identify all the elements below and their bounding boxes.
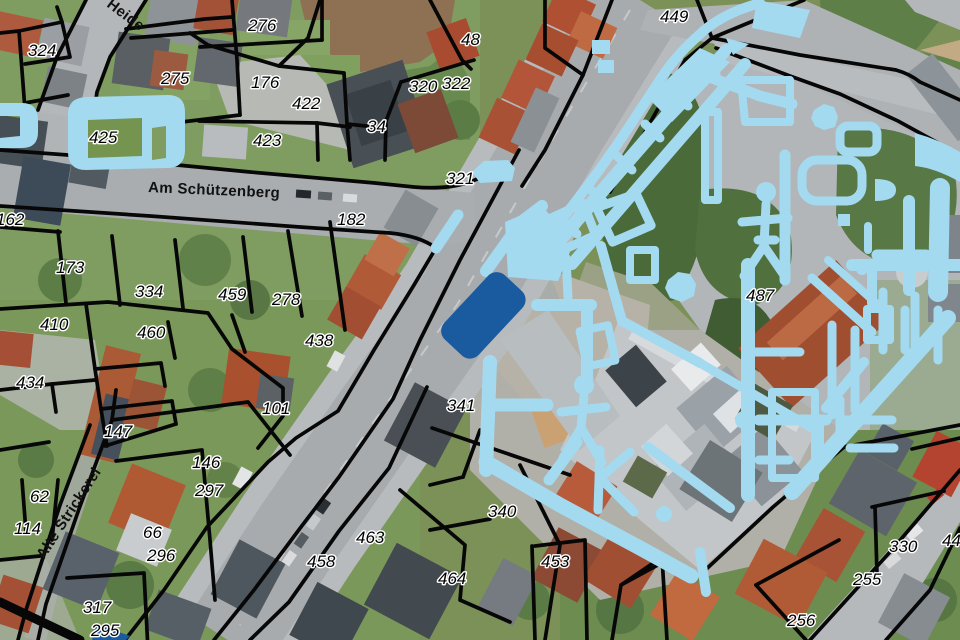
svg-text:487: 487 — [746, 286, 775, 305]
svg-text:453: 453 — [541, 552, 570, 571]
svg-text:256: 256 — [786, 611, 816, 630]
svg-text:410: 410 — [40, 315, 69, 334]
svg-text:255: 255 — [852, 570, 882, 589]
svg-text:101: 101 — [262, 399, 290, 418]
svg-text:34: 34 — [367, 117, 386, 136]
svg-text:341: 341 — [447, 396, 475, 415]
svg-text:176: 176 — [251, 73, 280, 92]
svg-text:182: 182 — [337, 210, 366, 229]
svg-text:147: 147 — [104, 422, 133, 441]
svg-text:458: 458 — [307, 552, 336, 571]
svg-text:449: 449 — [660, 7, 689, 26]
svg-text:438: 438 — [305, 331, 334, 350]
svg-text:330: 330 — [889, 537, 918, 556]
svg-text:434: 434 — [16, 373, 44, 392]
svg-text:162: 162 — [0, 210, 25, 229]
svg-text:425: 425 — [89, 128, 118, 147]
svg-text:173: 173 — [56, 258, 85, 277]
svg-text:459: 459 — [218, 285, 247, 304]
svg-text:334: 334 — [135, 282, 163, 301]
svg-text:44: 44 — [942, 531, 960, 550]
svg-text:295: 295 — [90, 621, 120, 640]
svg-text:114: 114 — [14, 519, 41, 538]
svg-text:317: 317 — [83, 598, 112, 617]
svg-text:463: 463 — [356, 528, 385, 547]
svg-text:296: 296 — [146, 546, 176, 565]
svg-text:321: 321 — [446, 169, 474, 188]
svg-text:320: 320 — [409, 77, 438, 96]
svg-text:146: 146 — [192, 453, 221, 472]
svg-text:66: 66 — [143, 523, 162, 542]
svg-text:422: 422 — [292, 94, 321, 113]
svg-text:322: 322 — [442, 74, 471, 93]
svg-text:297: 297 — [194, 481, 224, 500]
svg-text:460: 460 — [137, 323, 166, 342]
svg-text:276: 276 — [247, 16, 277, 35]
svg-text:340: 340 — [488, 502, 517, 521]
svg-text:423: 423 — [253, 131, 282, 150]
svg-text:275: 275 — [160, 69, 190, 88]
svg-text:48: 48 — [461, 30, 480, 49]
svg-text:464: 464 — [438, 569, 466, 588]
svg-text:278: 278 — [271, 290, 301, 309]
svg-text:62: 62 — [30, 487, 49, 506]
svg-text:324: 324 — [28, 41, 56, 60]
